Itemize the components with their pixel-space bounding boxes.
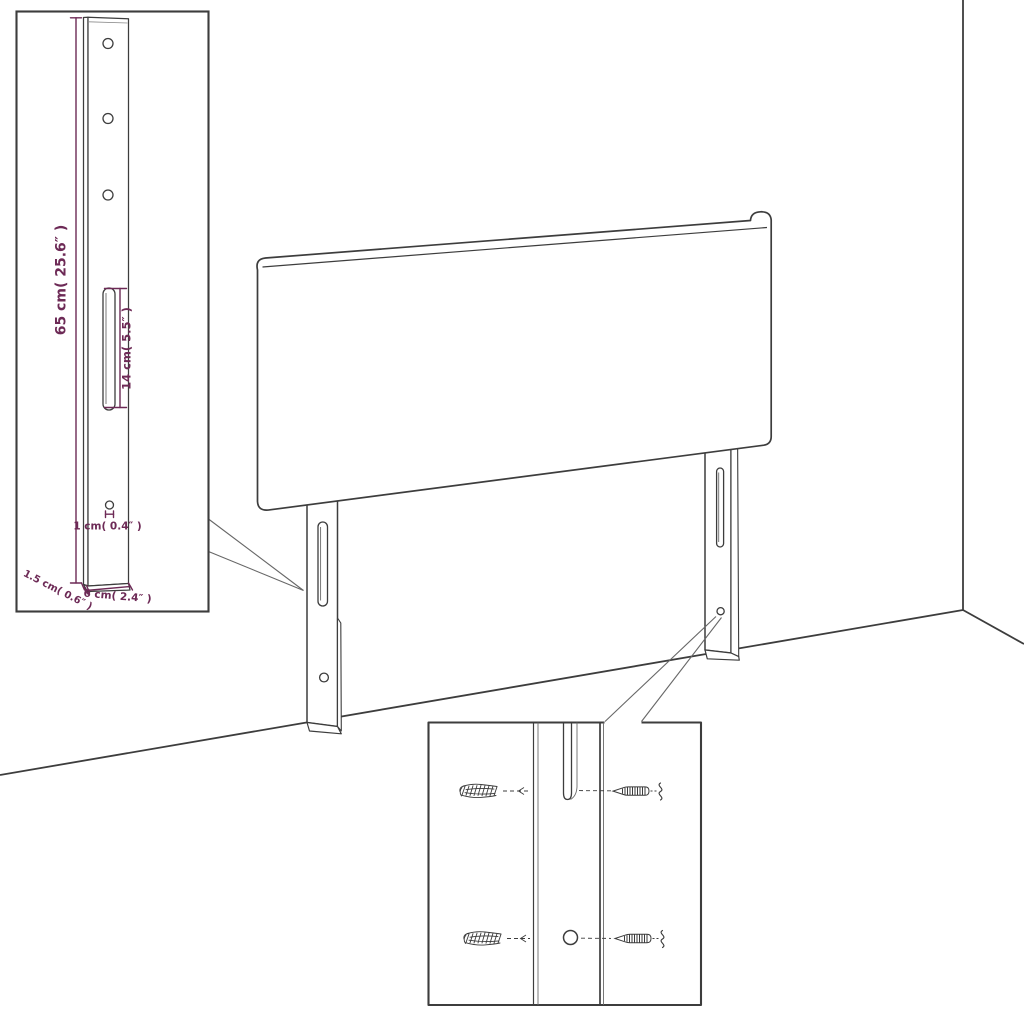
dim-height-label: 65 cm( 25.6″ ) <box>54 225 70 336</box>
floor-line-right <box>963 610 1024 644</box>
leg-bar-drawing <box>84 17 131 591</box>
inset-mounting-detail <box>429 723 702 1006</box>
inset-leg-detail: 65 cm( 25.6″ ) 14 cm( 5.5″ ) 1 cm( 0.4″ … <box>17 12 209 613</box>
dim-slot-label: 14 cm( 5.5″ ) <box>120 307 134 390</box>
panel-outline <box>257 212 771 510</box>
dim-hole-label: 1 cm( 0.4″ ) <box>73 521 141 533</box>
left-leg-front-face <box>307 480 338 727</box>
left-leg-side-face <box>338 618 342 731</box>
leg-bar-side-face <box>84 17 89 586</box>
right-leg-side-face <box>731 440 739 657</box>
callout-lines-left-inset <box>209 519 304 591</box>
headboard-panel <box>257 212 771 510</box>
headboard-right-leg <box>705 440 739 660</box>
diagram-canvas: 65 cm( 25.6″ ) 14 cm( 5.5″ ) 1 cm( 0.4″ … <box>0 0 1024 1024</box>
assembly-diagram: 65 cm( 25.6″ ) 14 cm( 5.5″ ) 1 cm( 0.4″ … <box>0 0 1024 1024</box>
headboard-left-leg <box>307 480 341 734</box>
inset-mounting-detail-box <box>429 723 702 1006</box>
